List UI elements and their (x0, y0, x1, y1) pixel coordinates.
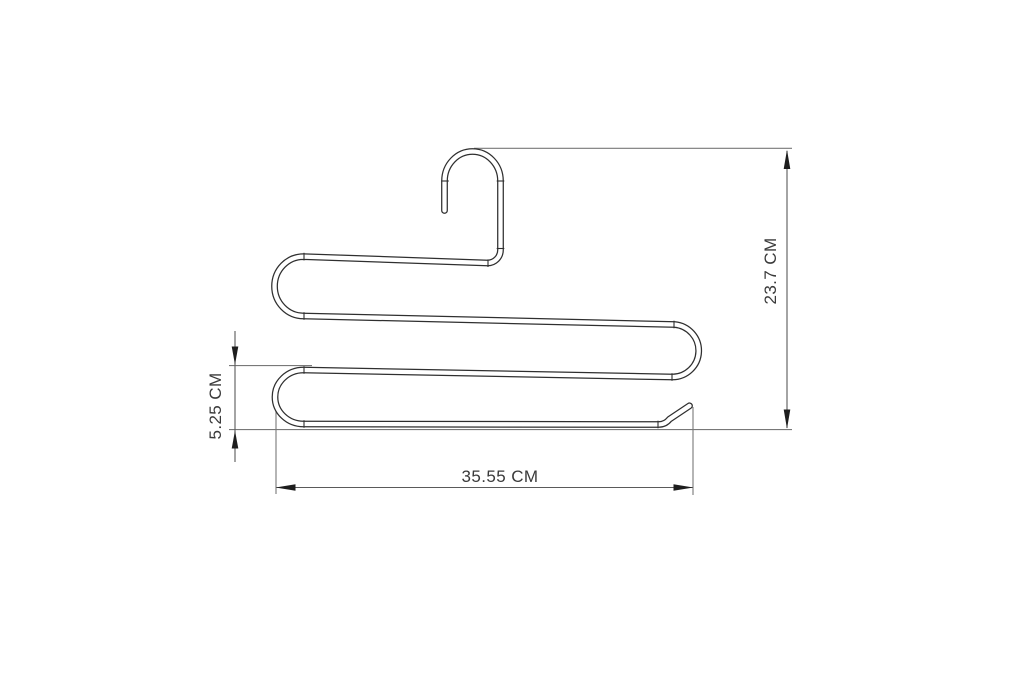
dim-label-width: 35.55 CM (462, 467, 539, 486)
drawing-canvas: 23.7 CM 5.25 CM 35.55 CM (0, 0, 1024, 683)
drawing-background (0, 0, 1024, 683)
dim-label-tier-spacing: 5.25 CM (206, 372, 225, 439)
pants-hanger-dimension-drawing: 23.7 CM 5.25 CM 35.55 CM (0, 0, 1024, 683)
dim-label-height: 23.7 CM (761, 237, 780, 304)
